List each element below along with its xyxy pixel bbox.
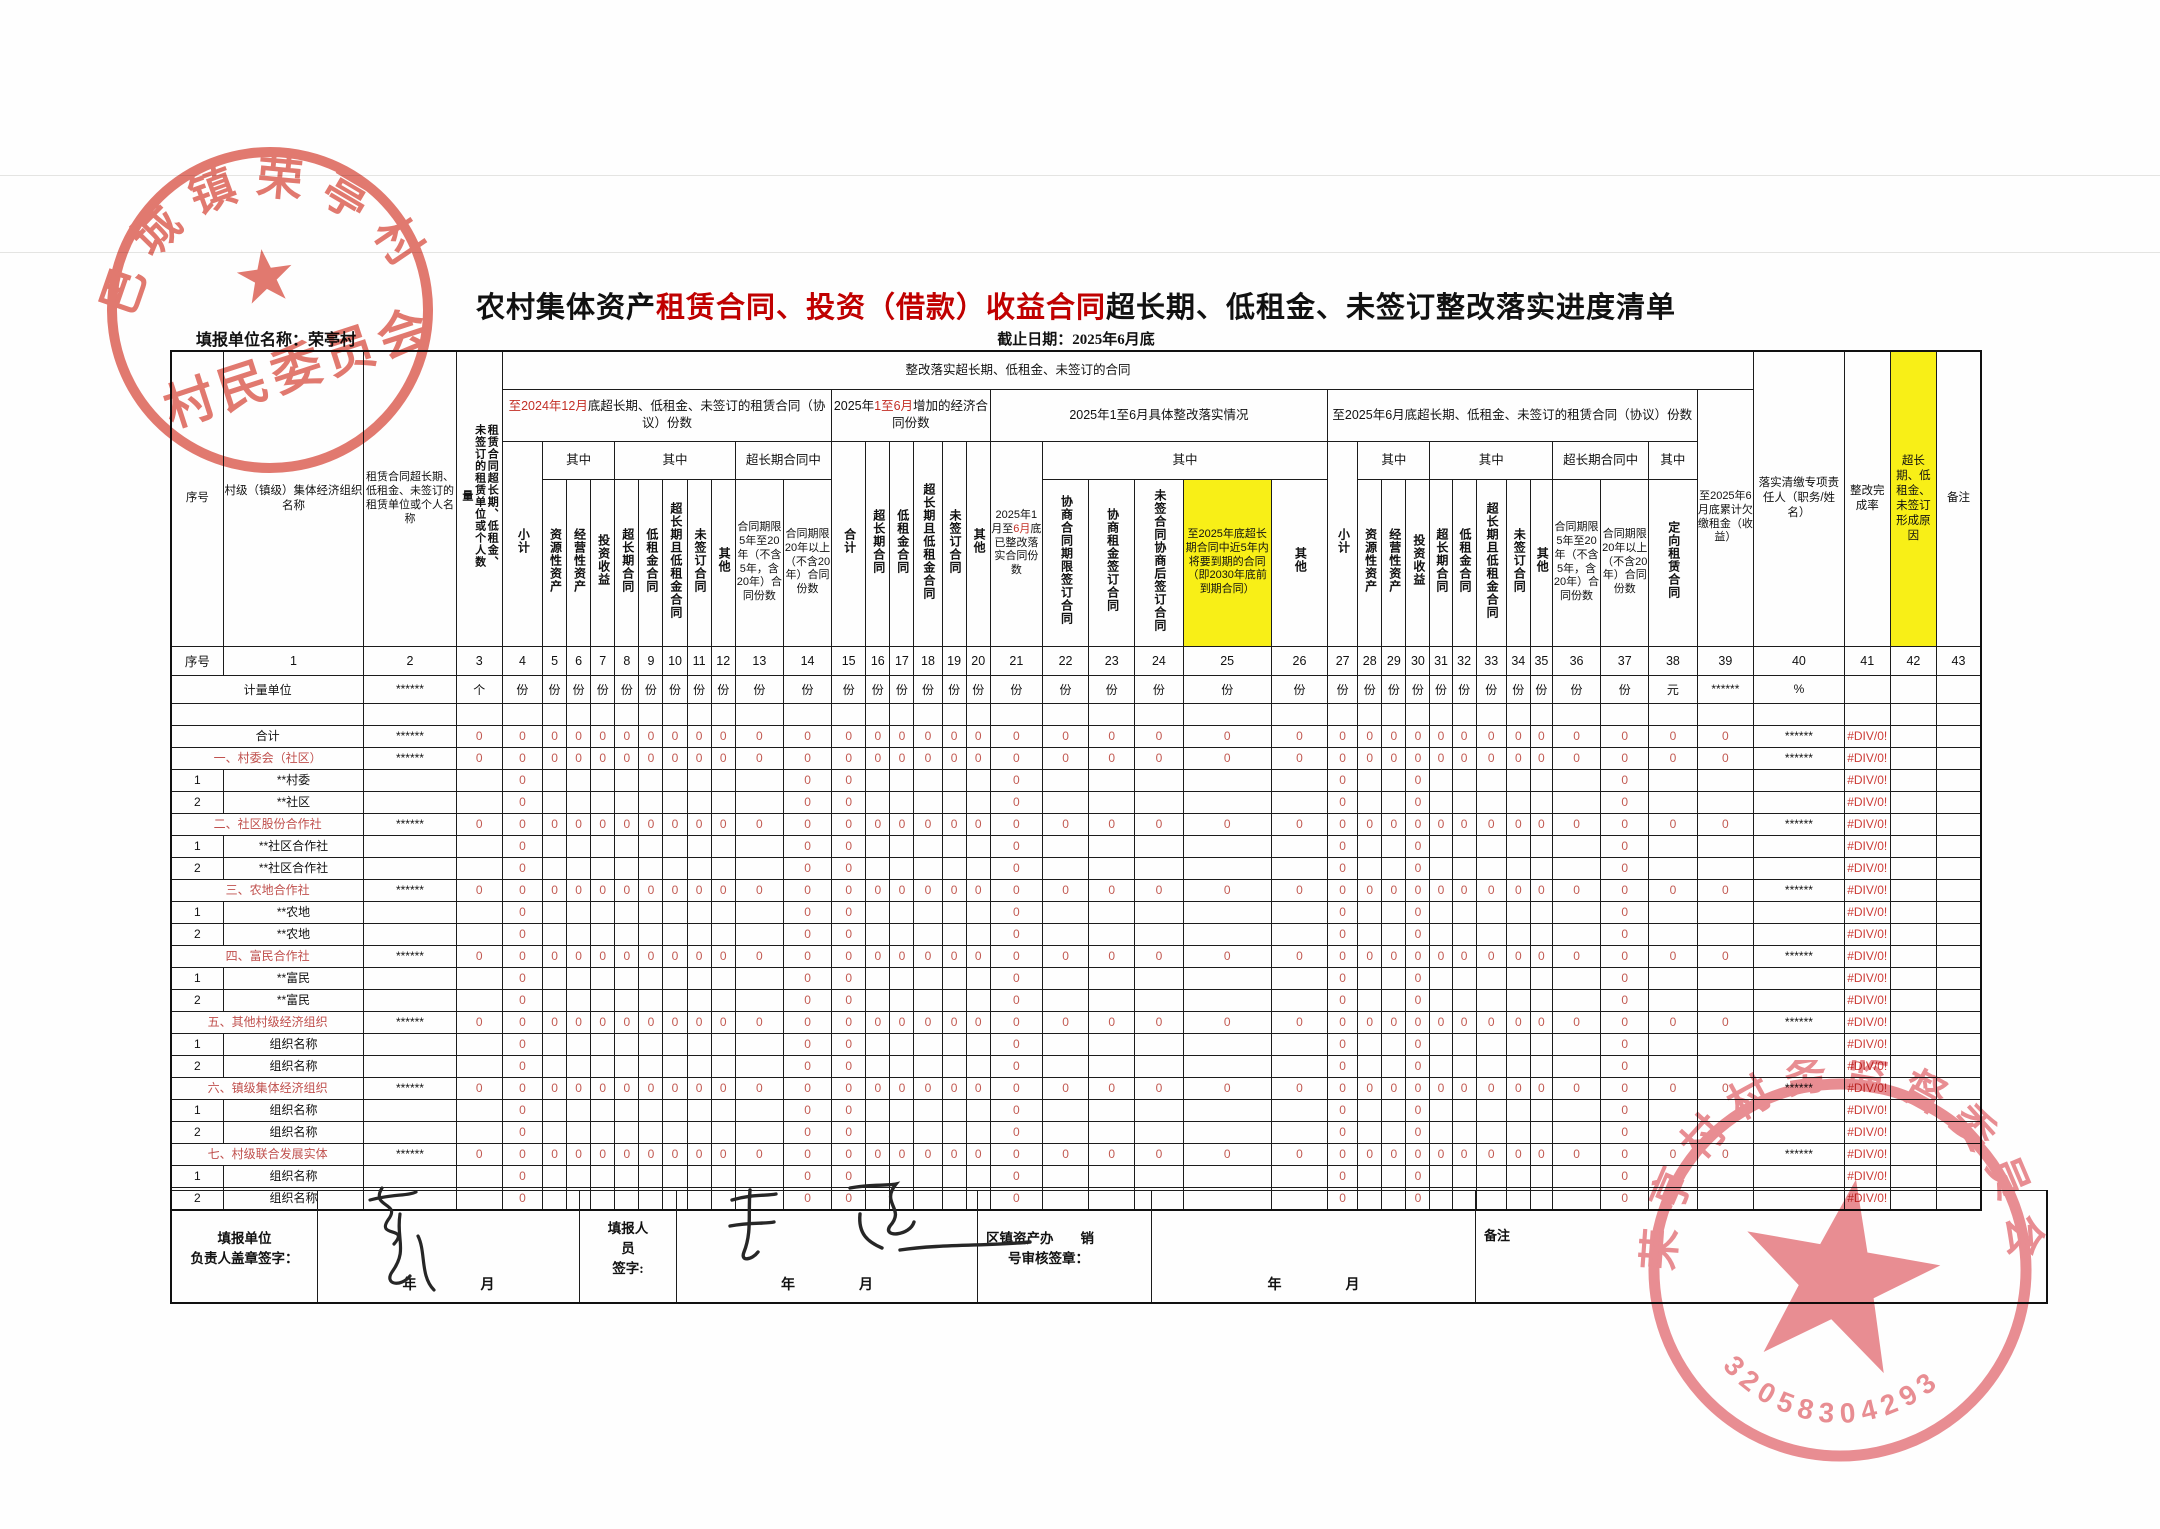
value-cell: 0 [1135,879,1183,901]
value-cell [966,835,990,857]
value-cell: 0 [1601,901,1649,923]
column-number-cell: 43 [1936,646,1981,675]
value-cell [966,967,990,989]
value-cell: 0 [1183,747,1271,769]
value-cell [1649,857,1697,879]
value-cell [890,923,914,945]
value-cell [1271,1099,1327,1121]
error-cell: #DIV/0! [1844,835,1890,857]
org-row: 2**富民0000000#DIV/0! [171,989,1981,1011]
value-cell [1089,901,1135,923]
value-cell [1649,703,1697,725]
value-cell [663,923,687,945]
value-cell [591,1121,615,1143]
value-cell: 0 [1089,945,1135,967]
value-cell: 0 [1183,725,1271,747]
value-cell [1890,769,1936,791]
value-cell: 0 [639,813,663,835]
category-row: 一、村委会（社区）******0000000000000000000000000… [171,747,1981,769]
value-cell [364,1099,456,1121]
unit-cell: 份 [914,675,942,703]
value-cell: 0 [1042,1143,1088,1165]
value-cell: 0 [832,1033,866,1055]
col-header-term5-20-2: 合同期限5年至20年（不含5年，含20年）合同份数 [1552,479,1600,646]
column-number-cell: 8 [615,646,639,675]
value-cell: 0 [543,1011,567,1033]
value-cell [639,967,663,989]
value-cell [639,989,663,1011]
value-cell: 0 [735,945,783,967]
error-cell: #DIV/0! [1844,857,1890,879]
value-cell: 0 [711,1143,735,1165]
value-cell [1135,1165,1183,1187]
value-cell: 0 [1358,725,1382,747]
value-cell [615,1055,639,1077]
value-cell [1271,967,1327,989]
value-cell: 0 [1271,1077,1327,1099]
value-cell [1476,901,1506,923]
value-cell [1089,1165,1135,1187]
value-cell [1382,1055,1406,1077]
masked-cell: ****** [1754,725,1844,747]
value-cell [1890,725,1936,747]
column-number-cell: 16 [866,646,890,675]
value-cell [1382,857,1406,879]
value-cell: 0 [1358,945,1382,967]
value-cell [1042,835,1088,857]
masked-cell: ****** [364,879,456,901]
value-cell [711,1055,735,1077]
value-cell [543,1099,567,1121]
value-cell [1183,967,1271,989]
value-cell [966,1099,990,1121]
value-cell: 0 [1358,879,1382,901]
value-cell [711,989,735,1011]
org-row: 2**农地0000000#DIV/0! [171,923,1981,945]
value-cell: 0 [832,1077,866,1099]
column-number-cell: 32 [1452,646,1476,675]
value-cell [1649,791,1697,813]
column-number-cell: 14 [783,646,831,675]
error-cell: #DIV/0! [1844,945,1890,967]
value-cell [456,835,502,857]
subgroup-longterm-1: 超长期合同中 [735,441,831,479]
value-cell [687,791,711,813]
value-cell: 0 [990,769,1042,791]
value-cell: 0 [990,967,1042,989]
value-cell [567,901,591,923]
value-cell [1530,835,1552,857]
value-cell: 0 [1328,1077,1358,1099]
value-cell: 0 [639,747,663,769]
col-header-invest-income-1: 投资收益 [591,479,615,646]
value-cell: 0 [1452,879,1476,901]
value-cell: 0 [783,945,831,967]
value-cell [1452,1099,1476,1121]
value-cell [1183,857,1271,879]
value-cell [866,1121,890,1143]
value-cell: 0 [711,945,735,967]
column-number-cell: 9 [639,646,663,675]
value-cell: 0 [783,1055,831,1077]
value-cell: 0 [1358,1077,1382,1099]
value-cell: 0 [1135,725,1183,747]
value-cell [1754,901,1844,923]
value-cell [456,901,502,923]
value-cell [735,703,783,725]
value-cell [711,791,735,813]
value-cell [1382,923,1406,945]
col-header-lessee-count: 租赁合同超长期、低租金、未签订的租赁单位或个人数量 [456,351,502,646]
unit-cell: 份 [639,675,663,703]
value-cell: 0 [639,1077,663,1099]
value-cell [1382,989,1406,1011]
category-row: 四、富民合作社******000000000000000000000000000… [171,945,1981,967]
row-name-cell: 组织名称 [223,1055,364,1077]
value-cell: 0 [1271,725,1327,747]
value-cell: 0 [735,725,783,747]
unit-cell: 份 [832,675,866,703]
row-name-cell: 七、村级联合发展实体 [171,1143,364,1165]
value-cell [1936,923,1981,945]
value-cell: 0 [591,879,615,901]
value-cell: 0 [1382,1011,1406,1033]
value-cell [1382,703,1406,725]
value-cell: 0 [1552,1077,1600,1099]
row-seq-cell: 2 [171,791,223,813]
value-cell [711,769,735,791]
value-cell [966,989,990,1011]
value-cell: 0 [783,1011,831,1033]
value-cell: 0 [502,923,542,945]
value-cell: 0 [866,879,890,901]
value-cell [1754,703,1844,725]
value-cell [543,1121,567,1143]
value-cell: 0 [1697,725,1754,747]
value-cell [866,1099,890,1121]
value-cell [1506,989,1530,1011]
value-cell [1135,1099,1183,1121]
value-cell [711,1033,735,1055]
value-cell: 0 [1382,879,1406,901]
column-number-cell: 7 [591,646,615,675]
error-cell: #DIV/0! [1844,769,1890,791]
value-cell: 0 [1089,747,1135,769]
col-header-expiring-2030: 至2025年底超长期合同中近5年内将要到期的合同（即2030年底前到期合同） [1183,479,1271,646]
col-header-negotiate-sign: 未签合同协商后签订合同 [1135,479,1183,646]
value-cell: 0 [1476,1011,1506,1033]
value-cell [1135,791,1183,813]
col-header-term5-20-1: 合同期限5年至20年（不含5年，含20年）合同份数 [735,479,783,646]
value-cell [783,703,831,725]
value-cell [966,1121,990,1143]
masked-cell: ****** [364,1011,456,1033]
col-header-operating-asset-1: 经营性资产 [567,479,591,646]
value-cell: 0 [1430,945,1452,967]
value-cell: 0 [1271,879,1327,901]
value-cell: 0 [990,857,1042,879]
value-cell: 0 [1476,747,1506,769]
value-cell [615,923,639,945]
unit-cell: 份 [663,675,687,703]
column-number-cell: 17 [890,646,914,675]
org-row: 1**社区合作社0000000#DIV/0! [171,835,1981,857]
subgroup-among-6: 其中 [1649,441,1697,479]
value-cell: 0 [1042,879,1088,901]
unit-cell: 个 [456,675,502,703]
col-header-responsible-person: 落实清缴专项责任人（职务/姓名） [1754,351,1844,646]
value-cell [735,1033,783,1055]
group-rectification-status: 2025年1至6月具体整改落实情况 [990,389,1327,441]
value-cell: 0 [783,1077,831,1099]
col-header-negotiate-term: 协商合同期限签订合同 [1042,479,1088,646]
value-cell [1089,923,1135,945]
value-cell: 0 [1358,1011,1382,1033]
value-cell [1089,857,1135,879]
value-cell [1452,989,1476,1011]
value-cell [1890,747,1936,769]
value-cell [663,835,687,857]
value-cell [364,791,456,813]
unit-cell: 份 [966,675,990,703]
value-cell [1530,1165,1552,1187]
value-cell: 0 [1697,945,1754,967]
value-cell [1936,879,1981,901]
value-cell: 0 [502,813,542,835]
value-cell: 0 [687,1011,711,1033]
column-number-cell: 6 [567,646,591,675]
value-cell: 0 [1530,1143,1552,1165]
value-cell [1649,989,1697,1011]
value-cell [1382,769,1406,791]
value-cell [615,857,639,879]
error-cell: #DIV/0! [1844,967,1890,989]
masked-cell: ****** [1754,1011,1844,1033]
value-cell [591,901,615,923]
value-cell [1452,835,1476,857]
value-cell: 0 [502,747,542,769]
value-cell: 0 [615,1011,639,1033]
value-cell [1890,857,1936,879]
value-cell [663,1165,687,1187]
units-row: 计量单位******个份份份份份份份份份份份份份份份份份份份份份份份份份份份份份… [171,675,1981,703]
column-number-cell: 39 [1697,646,1754,675]
value-cell [364,1121,456,1143]
value-cell [914,923,942,945]
value-cell: 0 [866,945,890,967]
row-name-cell: **村委 [223,769,364,791]
value-cell: 0 [1452,813,1476,835]
value-cell [687,769,711,791]
org-row: 2**社区0000000#DIV/0! [171,791,1981,813]
column-number-cell: 38 [1649,646,1697,675]
value-cell [615,769,639,791]
value-cell: 0 [615,725,639,747]
value-cell: 0 [990,813,1042,835]
unit-cell: 份 [890,675,914,703]
value-cell [1754,769,1844,791]
value-cell [1506,857,1530,879]
value-cell [990,703,1042,725]
value-cell: 0 [832,835,866,857]
value-cell [364,703,456,725]
column-number-cell: 21 [990,646,1042,675]
row-seq-cell: 2 [171,923,223,945]
value-cell [687,923,711,945]
value-cell: 0 [990,901,1042,923]
value-cell [1382,835,1406,857]
value-cell: 0 [890,725,914,747]
value-cell: 0 [687,813,711,835]
value-cell: 0 [1476,725,1506,747]
category-row: 二、社区股份合作社******0000000000000000000000000… [171,813,1981,835]
unit-cell: 份 [1506,675,1530,703]
value-cell: 0 [942,1143,966,1165]
value-cell [1936,857,1981,879]
value-cell [966,857,990,879]
unit-cell: 份 [1476,675,1506,703]
value-cell: 0 [591,747,615,769]
value-cell [735,989,783,1011]
value-cell: 0 [1328,791,1358,813]
value-cell: 0 [1506,879,1530,901]
value-cell: 0 [1506,813,1530,835]
masked-cell: ****** [1754,879,1844,901]
value-cell: 0 [914,747,942,769]
value-cell [711,967,735,989]
value-cell: 0 [914,725,942,747]
value-cell [639,901,663,923]
value-cell [1430,703,1452,725]
value-cell: 0 [687,725,711,747]
value-cell: 0 [832,747,866,769]
value-cell [914,835,942,857]
value-cell [687,703,711,725]
value-cell [1271,791,1327,813]
value-cell [591,1033,615,1055]
value-cell: 0 [502,835,542,857]
value-cell: 0 [687,879,711,901]
value-cell [1042,1121,1088,1143]
value-cell [543,989,567,1011]
unit-cell [1844,675,1890,703]
value-cell: 0 [1476,879,1506,901]
value-cell: 0 [591,1143,615,1165]
value-cell: 0 [591,813,615,835]
value-cell: 0 [1506,1011,1530,1033]
unit-cell: 份 [591,675,615,703]
value-cell [735,835,783,857]
value-cell: 0 [783,1033,831,1055]
value-cell: 0 [783,813,831,835]
value-cell [1358,857,1382,879]
value-cell [1649,769,1697,791]
value-cell [711,835,735,857]
value-cell [502,703,542,725]
value-cell: 0 [502,901,542,923]
value-cell [639,923,663,945]
value-cell [914,703,942,725]
row-name-cell: **社区 [223,791,364,813]
value-cell [890,703,914,725]
value-cell: 0 [615,1143,639,1165]
value-cell: 0 [783,747,831,769]
value-cell [567,703,591,725]
value-cell [914,989,942,1011]
value-cell [1271,1121,1327,1143]
village-affairs-supervision-stamp: 荣亭村村务监督委员会 3205830429390 [1630,1060,2050,1480]
value-cell [1890,703,1936,725]
value-cell [456,1055,502,1077]
value-cell [1697,1033,1754,1055]
value-cell: 0 [543,813,567,835]
value-cell [615,1165,639,1187]
value-cell [1358,1165,1382,1187]
value-cell: 0 [1382,725,1406,747]
value-cell [966,703,990,725]
value-cell [591,1165,615,1187]
value-cell [1697,967,1754,989]
value-cell: 0 [914,1143,942,1165]
value-cell [1358,791,1382,813]
value-cell [615,703,639,725]
value-cell [1936,747,1981,769]
value-cell: 0 [735,813,783,835]
value-cell [1382,901,1406,923]
value-cell: 0 [1271,1011,1327,1033]
value-cell [543,835,567,857]
value-cell: 0 [966,813,990,835]
value-cell: 0 [783,725,831,747]
value-cell [1552,1055,1600,1077]
value-cell: 0 [890,879,914,901]
value-cell [456,1033,502,1055]
value-cell [639,1121,663,1143]
row-seq-cell: 1 [171,1165,223,1187]
col-header-operating-asset-2: 经营性资产 [1382,479,1406,646]
row-seq-cell: 1 [171,1033,223,1055]
value-cell: 0 [966,747,990,769]
value-cell [364,1033,456,1055]
value-cell: 0 [1382,945,1406,967]
value-cell: 0 [1530,1077,1552,1099]
value-cell [364,923,456,945]
value-cell [1089,1099,1135,1121]
value-cell: 0 [832,989,866,1011]
value-cell: 0 [1135,813,1183,835]
value-cell [1936,1011,1981,1033]
value-cell: 0 [543,879,567,901]
value-cell [1530,791,1552,813]
value-cell: 0 [1601,923,1649,945]
value-cell: 0 [1358,1143,1382,1165]
value-cell: 0 [1328,857,1358,879]
row-name-cell: 一、村委会（社区） [171,747,364,769]
row-seq-cell: 2 [171,989,223,1011]
value-cell: 0 [1406,1033,1430,1055]
value-cell [543,1055,567,1077]
value-cell: 0 [942,725,966,747]
value-cell: 0 [1476,1077,1506,1099]
value-cell [663,1055,687,1077]
unit-cell [1890,675,1936,703]
value-cell [1089,1055,1135,1077]
value-cell [615,989,639,1011]
value-cell [1530,1121,1552,1143]
value-cell [1530,703,1552,725]
value-cell [615,835,639,857]
value-cell [1452,967,1476,989]
